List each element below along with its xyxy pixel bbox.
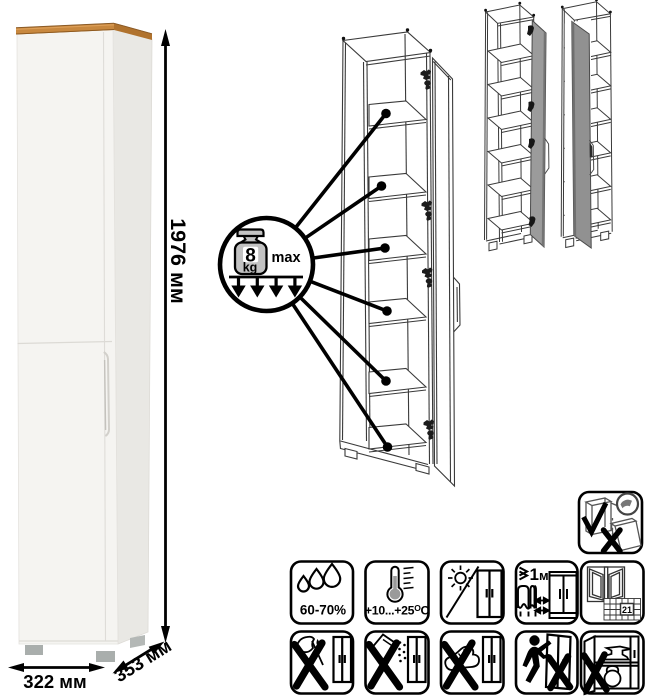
svg-text:322 мм: 322 мм xyxy=(23,671,86,692)
svg-text:60-70%: 60-70% xyxy=(300,603,346,618)
svg-text:max: max xyxy=(272,250,301,266)
svg-text:21: 21 xyxy=(622,605,632,615)
svg-text:1м: 1м xyxy=(530,565,549,584)
svg-text:1976 мм: 1976 мм xyxy=(166,218,190,304)
svg-text:kg: kg xyxy=(243,261,258,275)
svg-text:+10...+25OC: +10...+25OC xyxy=(365,603,430,618)
